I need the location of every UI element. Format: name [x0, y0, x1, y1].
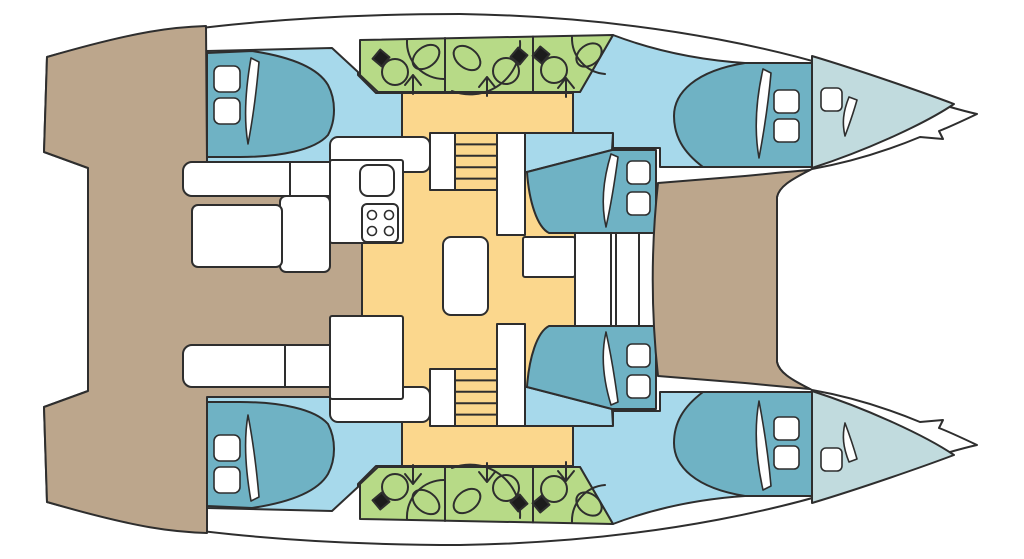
mid-passage — [575, 233, 658, 326]
hall-port — [497, 133, 525, 235]
catamaran-floor-plan — [0, 0, 1024, 559]
plan-root — [44, 14, 977, 545]
salon-table — [443, 237, 488, 315]
stair-landing-port — [430, 133, 455, 190]
hall-starboard — [497, 324, 525, 426]
galley-sink — [360, 165, 394, 196]
cockpit-table — [192, 205, 282, 267]
foredeck — [653, 170, 810, 389]
cockpit-l-bench — [280, 196, 330, 272]
deck-plan-svg — [0, 0, 1024, 559]
stove — [362, 204, 398, 242]
counter-starboard — [330, 316, 403, 399]
nav-desk — [523, 237, 575, 277]
stair-landing-starboard — [430, 369, 455, 426]
